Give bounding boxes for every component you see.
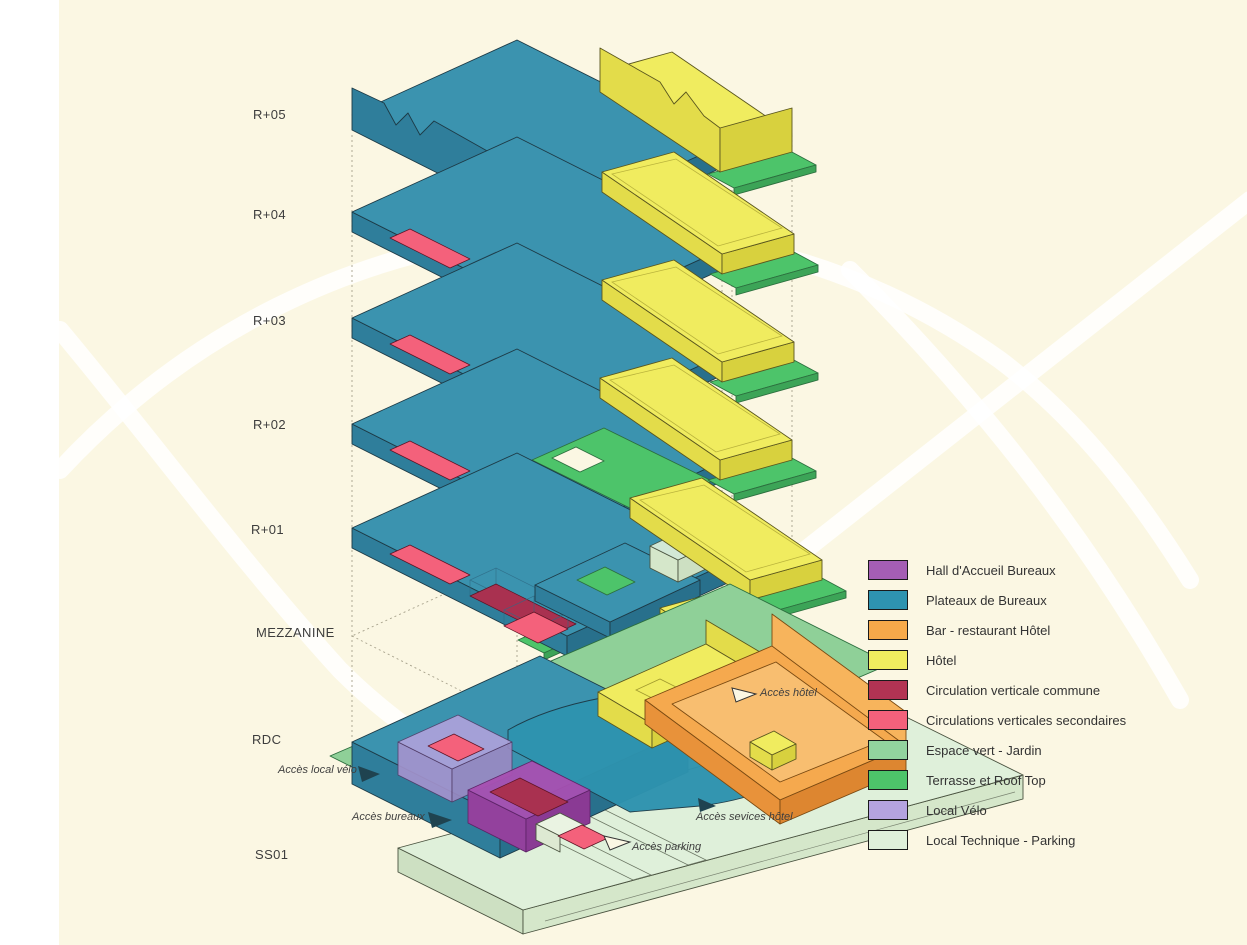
legend-label-local-technique: Local Technique - Parking [926, 833, 1075, 848]
legend-item-bar-restaurant: Bar - restaurant Hôtel [868, 620, 1126, 640]
annotation-acces-bureaux: Accès bureaux [352, 811, 425, 823]
legend-label-hall-accueil: Hall d'Accueil Bureaux [926, 563, 1056, 578]
floor-label-r03: R+03 [253, 313, 286, 328]
legend-swatch-local-technique [868, 830, 908, 850]
legend-swatch-terrasse-rooftop [868, 770, 908, 790]
legend-item-terrasse-rooftop: Terrasse et Roof Top [868, 770, 1126, 790]
floor-label-mezzanine: MEZZANINE [256, 625, 335, 640]
legend-item-circulation-commune: Circulation verticale commune [868, 680, 1126, 700]
legend-swatch-circulations-secondaires [868, 710, 908, 730]
legend-swatch-plateaux-bureaux [868, 590, 908, 610]
annotation-acces-services-hotel: Accès sevices hôtel [696, 811, 793, 823]
annotation-acces-local-velo: Accès local vélo [278, 764, 357, 776]
legend-swatch-espace-vert [868, 740, 908, 760]
legend-item-hall-accueil: Hall d'Accueil Bureaux [868, 560, 1126, 580]
legend-swatch-bar-restaurant [868, 620, 908, 640]
floor-label-r02: R+02 [253, 417, 286, 432]
legend-item-plateaux-bureaux: Plateaux de Bureaux [868, 590, 1126, 610]
legend-item-local-technique: Local Technique - Parking [868, 830, 1126, 850]
legend-label-bar-restaurant: Bar - restaurant Hôtel [926, 623, 1050, 638]
floor-label-ss01: SS01 [255, 847, 288, 862]
legend-label-local-velo: Local Vélo [926, 803, 987, 818]
legend-label-hotel: Hôtel [926, 653, 956, 668]
floor-label-rdc: RDC [252, 732, 281, 747]
floor-label-r04: R+04 [253, 207, 286, 222]
legend-item-hotel: Hôtel [868, 650, 1126, 670]
legend-label-circulations-secondaires: Circulations verticales secondaires [926, 713, 1126, 728]
legend-swatch-local-velo [868, 800, 908, 820]
legend-swatch-hotel [868, 650, 908, 670]
legend-label-plateaux-bureaux: Plateaux de Bureaux [926, 593, 1047, 608]
floor-label-r01: R+01 [251, 522, 284, 537]
legend-swatch-circulation-commune [868, 680, 908, 700]
floor-label-r05: R+05 [253, 107, 286, 122]
axonometric-program-diagram: R+05 R+04 R+03 R+02 R+01 MEZZANINE RDC S… [0, 0, 1247, 945]
legend-label-espace-vert: Espace vert - Jardin [926, 743, 1042, 758]
legend: Hall d'Accueil Bureaux Plateaux de Burea… [868, 560, 1126, 860]
annotation-acces-parking: Accès parking [632, 841, 701, 853]
legend-item-local-velo: Local Vélo [868, 800, 1126, 820]
legend-label-terrasse-rooftop: Terrasse et Roof Top [926, 773, 1046, 788]
annotation-acces-hotel: Accès hôtel [760, 687, 817, 699]
legend-item-circulations-secondaires: Circulations verticales secondaires [868, 710, 1126, 730]
legend-item-espace-vert: Espace vert - Jardin [868, 740, 1126, 760]
legend-label-circulation-commune: Circulation verticale commune [926, 683, 1100, 698]
legend-swatch-hall-accueil [868, 560, 908, 580]
